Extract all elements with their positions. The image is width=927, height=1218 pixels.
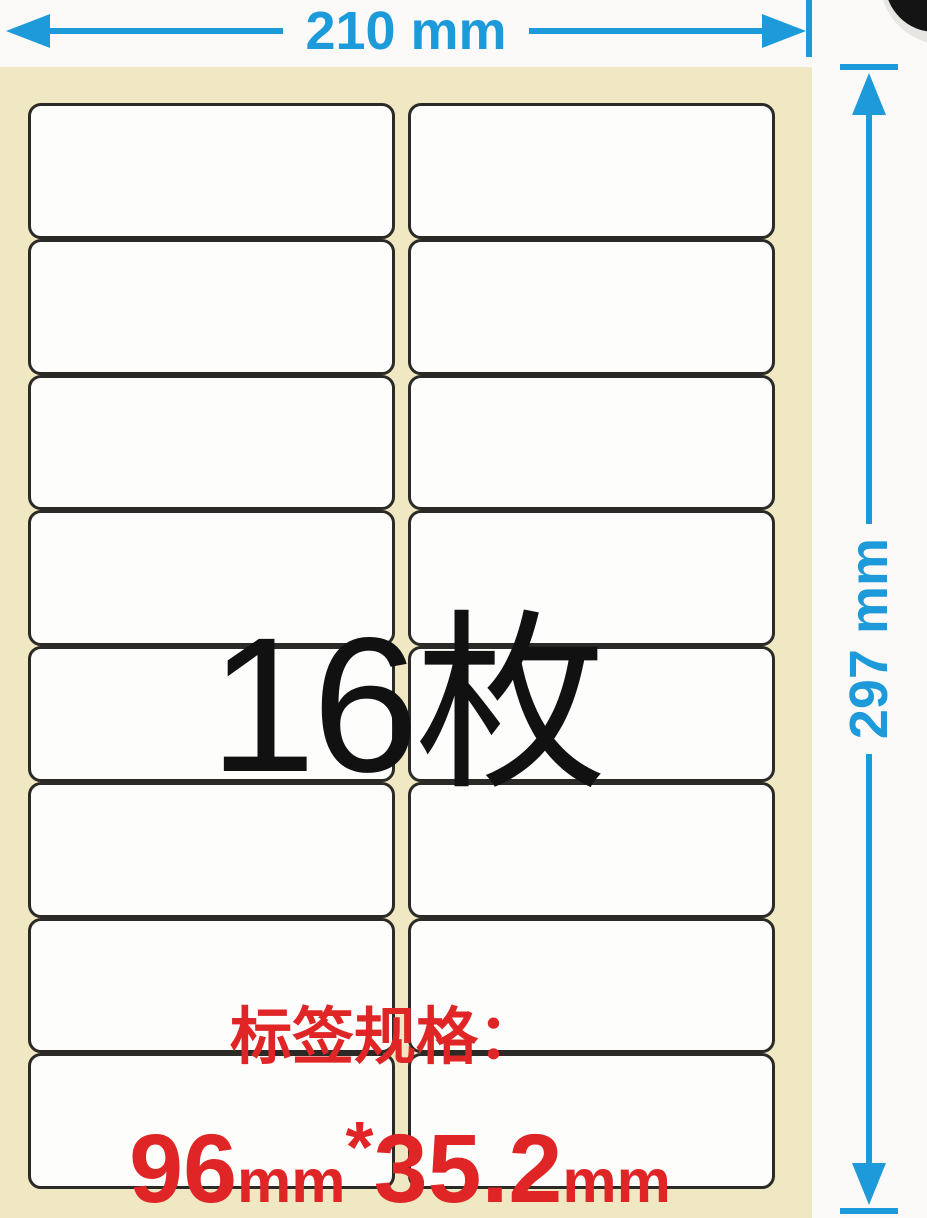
label-cell [28,239,395,375]
width-dimension-line [529,28,762,34]
product-spec-image: 210 mm 16枚 标签规格： 96mm*35.2mm 297 mm [0,0,927,1218]
height-dimension-bottom-tick [840,1208,898,1214]
label-cell [28,103,395,239]
label-cell [408,646,775,782]
label-sheet: 16枚 标签规格： 96mm*35.2mm [0,67,812,1218]
arrow-down-icon [852,1163,886,1205]
width-dimension-label: 210 mm [283,2,528,60]
label-cell [28,646,395,782]
height-dimension-top-tick [840,64,898,70]
width-dimension-end-tick [806,0,812,57]
height-dimension: 297 mm [840,64,898,1214]
label-cell [408,918,775,1054]
arrow-right-icon [762,14,806,48]
label-cell [28,510,395,646]
label-cell [408,375,775,511]
height-dimension-label: 297 mm [840,524,898,753]
height-dimension-line [866,115,872,524]
arrow-left-icon [6,14,50,48]
height-dimension-line [866,754,872,1163]
label-cell [28,782,395,918]
label-cell [28,375,395,511]
label-grid [28,103,775,1189]
label-cell [408,239,775,375]
arrow-up-icon [852,73,886,115]
label-cell [408,1053,775,1189]
label-cell [28,918,395,1054]
width-dimension-line [50,28,283,34]
label-cell [408,103,775,239]
label-cell [28,1053,395,1189]
label-cell [408,782,775,918]
label-cell [408,510,775,646]
width-dimension: 210 mm [6,2,806,60]
